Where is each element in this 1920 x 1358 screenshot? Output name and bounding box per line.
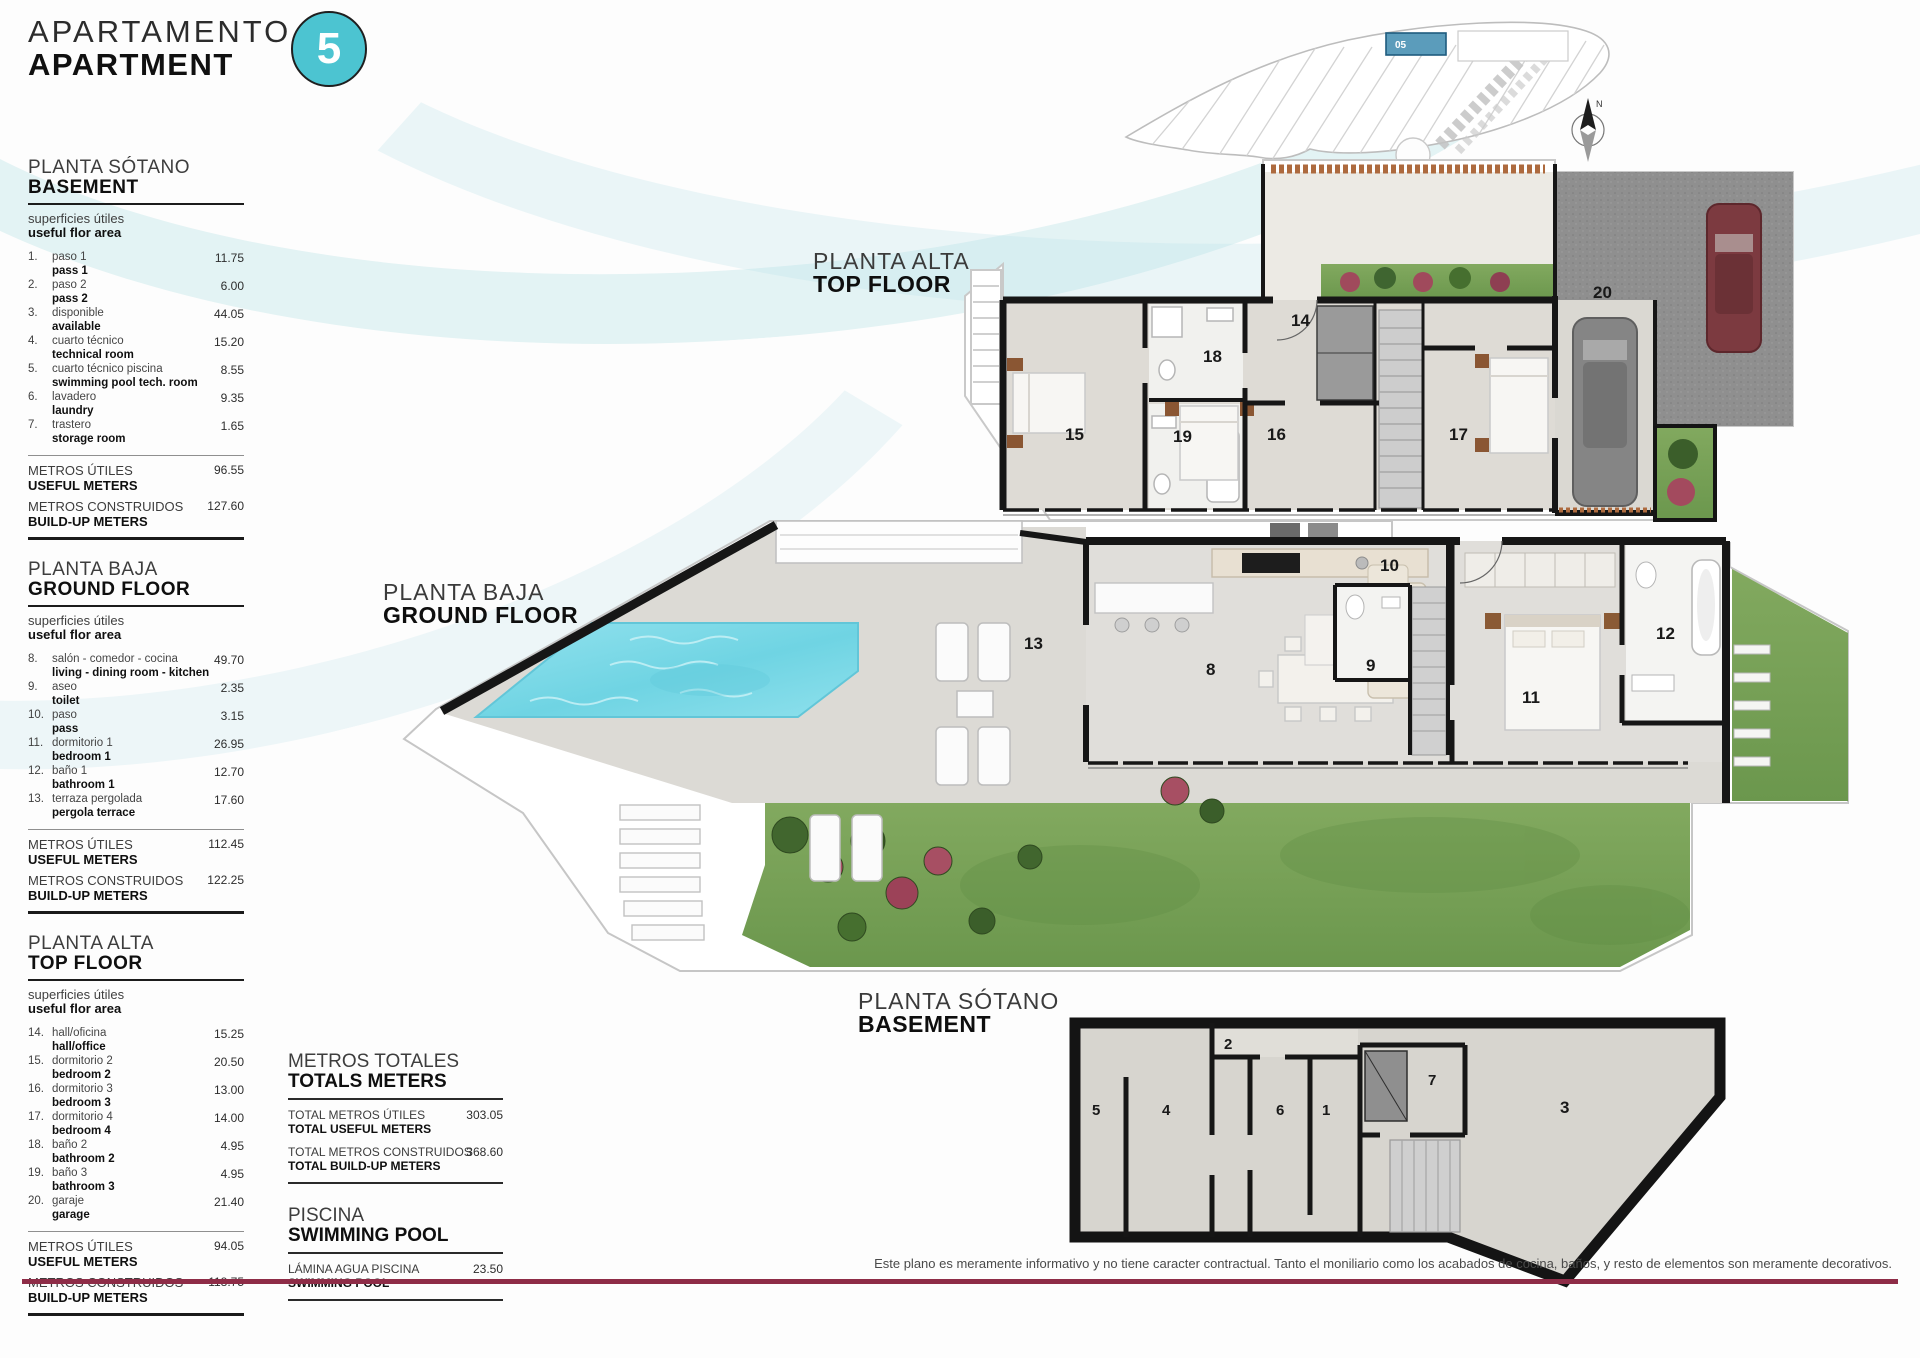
page-title-en: APARTMENT: [28, 49, 291, 82]
area-row: 14.hall/oficinahall/office15.25: [28, 1027, 244, 1054]
area-row-en: toilet: [52, 695, 230, 709]
area-row-en: bedroom 2: [52, 1069, 230, 1083]
corridor-floor: [1212, 1029, 1358, 1057]
ground-floor-plan: 8 9 10 11 12 13: [380, 505, 1855, 985]
area-row-names: aseotoilet: [52, 681, 244, 708]
area-row-number: 3.: [28, 307, 38, 321]
area-row-number: 17.: [28, 1111, 44, 1125]
divider: [28, 1313, 244, 1316]
area-row-number: 4.: [28, 335, 38, 349]
area-total-row: METROS ÚTILESUSEFUL METERS96.55: [28, 463, 244, 493]
area-total-value: 112.45: [208, 837, 244, 851]
area-row-number: 14.: [28, 1027, 44, 1041]
room-number: 13: [1024, 634, 1043, 653]
area-row-number: 20.: [28, 1195, 44, 1209]
area-row-es: dormitorio 4: [52, 1111, 230, 1125]
area-row-es: paso: [52, 709, 230, 723]
area-row-value: 15.25: [214, 1027, 244, 1041]
area-row-number: 1.: [28, 251, 38, 265]
area-row: 1.paso 1pass 111.75: [28, 251, 244, 278]
area-row-es: salón - comedor - cocina: [52, 653, 230, 667]
area-section-ground-floor: PLANTA BAJAGROUND FLOORsuperficies útile…: [28, 560, 244, 914]
footer-rule: [22, 1279, 1898, 1284]
room-number: 19: [1173, 427, 1192, 446]
room-number: 17: [1449, 425, 1468, 444]
pergola: [776, 521, 1022, 563]
area-row-value: 14.00: [214, 1111, 244, 1125]
totals-row-en: TOTAL BUILD-UP METERS: [288, 1159, 503, 1173]
divider: [288, 1299, 503, 1301]
brochure-page: APARTAMENTO APARTMENT 5 05: [0, 0, 1920, 1358]
area-row-value: 20.50: [214, 1055, 244, 1069]
section-subtitle-es: superficies útiles: [28, 614, 244, 628]
area-row-names: cuarto técnico piscinaswimming pool tech…: [52, 363, 244, 390]
area-row-value: 3.15: [221, 709, 244, 723]
room-number: 3: [1560, 1098, 1569, 1117]
room-number: 16: [1267, 425, 1286, 444]
totals-row-value: 303.05: [466, 1108, 503, 1122]
area-row-names: baño 2bathroom 2: [52, 1139, 244, 1166]
garage-car: [1573, 318, 1637, 506]
section-title-en: TOP FLOOR: [28, 954, 244, 974]
compass-n-label: N: [1596, 99, 1603, 109]
divider: [288, 1182, 503, 1184]
area-row-number: 13.: [28, 793, 44, 807]
area-section-top-floor: PLANTA ALTATOP FLOORsuperficies útilesus…: [28, 934, 244, 1316]
area-row-number: 11.: [28, 737, 43, 751]
unit-number: 5: [317, 24, 341, 74]
page-title: APARTAMENTO APARTMENT: [28, 16, 291, 81]
area-row-number: 15.: [28, 1055, 44, 1069]
area-total-row: METROS ÚTILESUSEFUL METERS94.05: [28, 1239, 244, 1269]
bathroom1: [1626, 545, 1724, 721]
swimming-pool: [476, 623, 858, 717]
area-row-en: pergola terrace: [52, 807, 230, 821]
area-row-value: 15.20: [214, 335, 244, 349]
divider: [28, 203, 244, 205]
area-row-en: bedroom 1: [52, 751, 230, 765]
pool-title-es: PISCINA: [288, 1206, 503, 1226]
area-row-value: 21.40: [214, 1195, 244, 1209]
area-row-es: dormitorio 1: [52, 737, 230, 751]
area-row: 3.disponibleavailable44.05: [28, 307, 244, 334]
area-row: 6.lavaderolaundry9.35: [28, 391, 244, 418]
area-total-row: METROS CONSTRUIDOSBUILD-UP METERS127.60: [28, 499, 244, 529]
area-row-names: paso 2pass 2: [52, 279, 244, 306]
divider: [28, 979, 244, 981]
room-number: 10: [1380, 556, 1399, 575]
area-row-en: garage: [52, 1209, 230, 1223]
area-row-en: bathroom 1: [52, 779, 230, 793]
room-number: 8: [1206, 660, 1215, 679]
area-row-en: swimming pool tech. room: [52, 377, 230, 391]
pool-title-en: SWIMMING POOL: [288, 1226, 503, 1246]
area-row-number: 18.: [28, 1139, 44, 1153]
divider: [28, 829, 244, 830]
totals-title-es: METROS TOTALES: [288, 1052, 503, 1072]
area-row-es: terraza pergolada: [52, 793, 230, 807]
top-floor-plan-label: PLANTA ALTA TOP FLOOR: [813, 250, 970, 296]
basement-plan-label: PLANTA SÓTANO BASEMENT: [858, 990, 1059, 1036]
area-row-value: 49.70: [214, 653, 244, 667]
area-row-en: bathroom 2: [52, 1153, 230, 1167]
area-row-value: 9.35: [221, 391, 244, 405]
area-row-names: trasterostorage room: [52, 419, 244, 446]
divider: [288, 1252, 503, 1254]
area-section-basement: PLANTA SÓTANOBASEMENTsuperficies útilesu…: [28, 158, 244, 540]
divider: [28, 911, 244, 914]
area-row-es: disponible: [52, 307, 230, 321]
area-row-number: 7.: [28, 419, 38, 433]
section-subtitle-en: useful flor area: [28, 1002, 244, 1016]
room-number: 14: [1291, 311, 1310, 330]
divider: [28, 537, 244, 540]
area-row: 18.baño 2bathroom 24.95: [28, 1139, 244, 1166]
totals-row-value: 368.60: [466, 1145, 503, 1159]
area-row-value: 4.95: [221, 1139, 244, 1153]
divider: [288, 1098, 503, 1100]
section-title-es: PLANTA BAJA: [28, 560, 244, 580]
area-row-es: garaje: [52, 1195, 230, 1209]
area-tables: PLANTA SÓTANOBASEMENTsuperficies útilesu…: [28, 158, 244, 1336]
area-row-value: 1.65: [221, 419, 244, 433]
section-subtitle-es: superficies útiles: [28, 988, 244, 1002]
area-row-value: 12.70: [214, 765, 244, 779]
pool-row-es: LÁMINA AGUA PISCINA: [288, 1262, 503, 1276]
room-number: 15: [1065, 425, 1084, 444]
top-floor-plan: 14 15 16 17 18 19 20: [955, 148, 1805, 523]
area-row: 17.dormitorio 4bedroom 414.00: [28, 1111, 244, 1138]
area-row-value: 26.95: [214, 737, 244, 751]
area-row-es: dormitorio 2: [52, 1055, 230, 1069]
area-total-es: METROS ÚTILES: [28, 1239, 244, 1254]
unit-number-badge: 5: [291, 11, 367, 87]
area-row-en: laundry: [52, 405, 230, 419]
stairs: [1379, 310, 1423, 508]
totals-and-pool-block: METROS TOTALES TOTALS METERS TOTAL METRO…: [288, 1052, 503, 1309]
section-subtitle-en: useful flor area: [28, 628, 244, 642]
area-row-number: 10.: [28, 709, 44, 723]
area-row-en: pass: [52, 723, 230, 737]
area-row-en: hall/office: [52, 1041, 230, 1055]
area-row-value: 8.55: [221, 363, 244, 377]
area-row-number: 9.: [28, 681, 38, 695]
room-number: 6: [1276, 1102, 1284, 1119]
totals-title-en: TOTALS METERS: [288, 1072, 503, 1092]
area-row: 4.cuarto técnicotechnical room15.20: [28, 335, 244, 362]
stairwell: [1412, 587, 1446, 755]
area-row-value: 44.05: [214, 307, 244, 321]
area-row-number: 12.: [28, 765, 44, 779]
room-number: 9: [1366, 656, 1375, 675]
area-row-es: paso 1: [52, 251, 230, 265]
disclaimer-text: Este plano es meramente informativo y no…: [700, 1256, 1892, 1271]
area-row-es: baño 3: [52, 1167, 230, 1181]
area-total-row: METROS CONSTRUIDOSBUILD-UP METERS122.25: [28, 873, 244, 903]
area-row-number: 5.: [28, 363, 38, 377]
area-total-es: METROS ÚTILES: [28, 463, 244, 478]
room-number: 4: [1162, 1102, 1171, 1119]
area-row: 13.terraza pergoladapergola terrace17.60: [28, 793, 244, 820]
louver-band: [971, 270, 1001, 404]
section-subtitle-es: superficies útiles: [28, 212, 244, 226]
divider: [28, 455, 244, 456]
area-row: 9.aseotoilet2.35: [28, 681, 244, 708]
area-total-value: 94.05: [214, 1239, 244, 1253]
area-row-value: 4.95: [221, 1167, 244, 1181]
area-row-es: cuarto técnico: [52, 335, 230, 349]
area-total-en: BUILD-UP METERS: [28, 1290, 244, 1305]
area-row-names: baño 3bathroom 3: [52, 1167, 244, 1194]
area-row: 5.cuarto técnico piscinaswimming pool te…: [28, 363, 244, 390]
area-total-value: 96.55: [214, 463, 244, 477]
area-row-es: baño 2: [52, 1139, 230, 1153]
area-row-es: trastero: [52, 419, 230, 433]
area-total-value: 127.60: [207, 499, 244, 513]
area-row-names: pasopass: [52, 709, 244, 736]
area-row-en: storage room: [52, 433, 230, 447]
area-row: 10.pasopass3.15: [28, 709, 244, 736]
totals-row: TOTAL METROS ÚTILES TOTAL USEFUL METERS …: [288, 1108, 503, 1136]
area-row: 11.dormitorio 1bedroom 126.95: [28, 737, 244, 764]
section-title-en: BASEMENT: [28, 178, 244, 198]
area-row-number: 16.: [28, 1083, 44, 1097]
area-row-es: aseo: [52, 681, 230, 695]
pool-row-value: 23.50: [473, 1262, 503, 1276]
room-number: 2: [1224, 1036, 1232, 1053]
area-row-es: cuarto técnico piscina: [52, 363, 230, 377]
area-row: 19.baño 3bathroom 34.95: [28, 1167, 244, 1194]
page-title-es: APARTAMENTO: [28, 16, 291, 49]
room-number: 12: [1656, 624, 1675, 643]
stairs: [1390, 1140, 1460, 1232]
site-unit-label: 05: [1395, 40, 1407, 51]
area-row-value: 11.75: [215, 251, 244, 265]
area-total-en: USEFUL METERS: [28, 1254, 244, 1269]
area-row: 15.dormitorio 2bedroom 220.50: [28, 1055, 244, 1082]
area-row-en: bathroom 3: [52, 1181, 230, 1195]
area-row-number: 8.: [28, 653, 38, 667]
divider: [28, 605, 244, 607]
area-row-value: 2.35: [221, 681, 244, 695]
area-row: 16.dormitorio 3bedroom 313.00: [28, 1083, 244, 1110]
area-row-es: lavadero: [52, 391, 230, 405]
section-title-es: PLANTA SÓTANO: [28, 158, 244, 178]
plan-label-es: PLANTA SÓTANO: [858, 990, 1059, 1013]
area-row-value: 17.60: [214, 793, 244, 807]
area-total-en: USEFUL METERS: [28, 852, 244, 867]
area-row-en: bedroom 4: [52, 1125, 230, 1139]
driveway-car: [1707, 204, 1761, 352]
section-title-es: PLANTA ALTA: [28, 934, 244, 954]
area-total-en: BUILD-UP METERS: [28, 888, 244, 903]
divider: [28, 1231, 244, 1232]
area-row: 12.baño 1bathroom 112.70: [28, 765, 244, 792]
area-row-value: 6.00: [221, 279, 244, 293]
room-number: 7: [1428, 1072, 1436, 1089]
section-subtitle-en: useful flor area: [28, 226, 244, 240]
area-row-en: bedroom 3: [52, 1097, 230, 1111]
area-row-es: hall/oficina: [52, 1027, 230, 1041]
area-row-number: 19.: [28, 1167, 44, 1181]
area-total-row: METROS ÚTILESUSEFUL METERS112.45: [28, 837, 244, 867]
area-row-en: technical room: [52, 349, 230, 363]
section-title-en: GROUND FLOOR: [28, 580, 244, 600]
area-row: 7.trasterostorage room1.65: [28, 419, 244, 446]
area-row-names: lavaderolaundry: [52, 391, 244, 418]
area-row-en: available: [52, 321, 230, 335]
totals-row-en: TOTAL USEFUL METERS: [288, 1122, 503, 1136]
area-total-en: BUILD-UP METERS: [28, 514, 244, 529]
area-row: 8.salón - comedor - cocinaliving - dinin…: [28, 653, 244, 680]
area-row-es: dormitorio 3: [52, 1083, 230, 1097]
area-row-es: baño 1: [52, 765, 230, 779]
room-number: 18: [1203, 347, 1222, 366]
plan-label-es: PLANTA ALTA: [813, 250, 970, 273]
area-total-en: USEFUL METERS: [28, 478, 244, 493]
site-neighbor-block: [1458, 31, 1568, 61]
room-number: 20: [1593, 283, 1612, 302]
room-number: 11: [1522, 688, 1540, 707]
area-row-number: 2.: [28, 279, 38, 293]
area-row-value: 13.00: [214, 1083, 244, 1097]
lawn: [742, 803, 1690, 967]
room-number: 1: [1322, 1102, 1330, 1119]
basement-plan: 1 2 3 4 5 6 7: [1060, 985, 1740, 1290]
area-row-es: paso 2: [52, 279, 230, 293]
pool-row: LÁMINA AGUA PISCINA SWIMMING POOL 23.50: [288, 1262, 503, 1290]
area-row: 2.paso 2pass 26.00: [28, 279, 244, 306]
area-row-number: 6.: [28, 391, 38, 405]
side-garden: [1732, 569, 1848, 801]
area-row-en: pass 2: [52, 293, 230, 307]
totals-row: TOTAL METROS CONSTRUIDOS TOTAL BUILD-UP …: [288, 1145, 503, 1173]
area-row: 20.garajegarage21.40: [28, 1195, 244, 1222]
area-row-en: living - dining room - kitchen: [52, 667, 230, 681]
plan-label-en: TOP FLOOR: [813, 273, 970, 296]
area-total-value: 122.25: [207, 873, 244, 887]
room-number: 5: [1092, 1102, 1100, 1119]
plan-label-en: BASEMENT: [858, 1013, 1059, 1036]
area-row-en: pass 1: [52, 265, 230, 279]
